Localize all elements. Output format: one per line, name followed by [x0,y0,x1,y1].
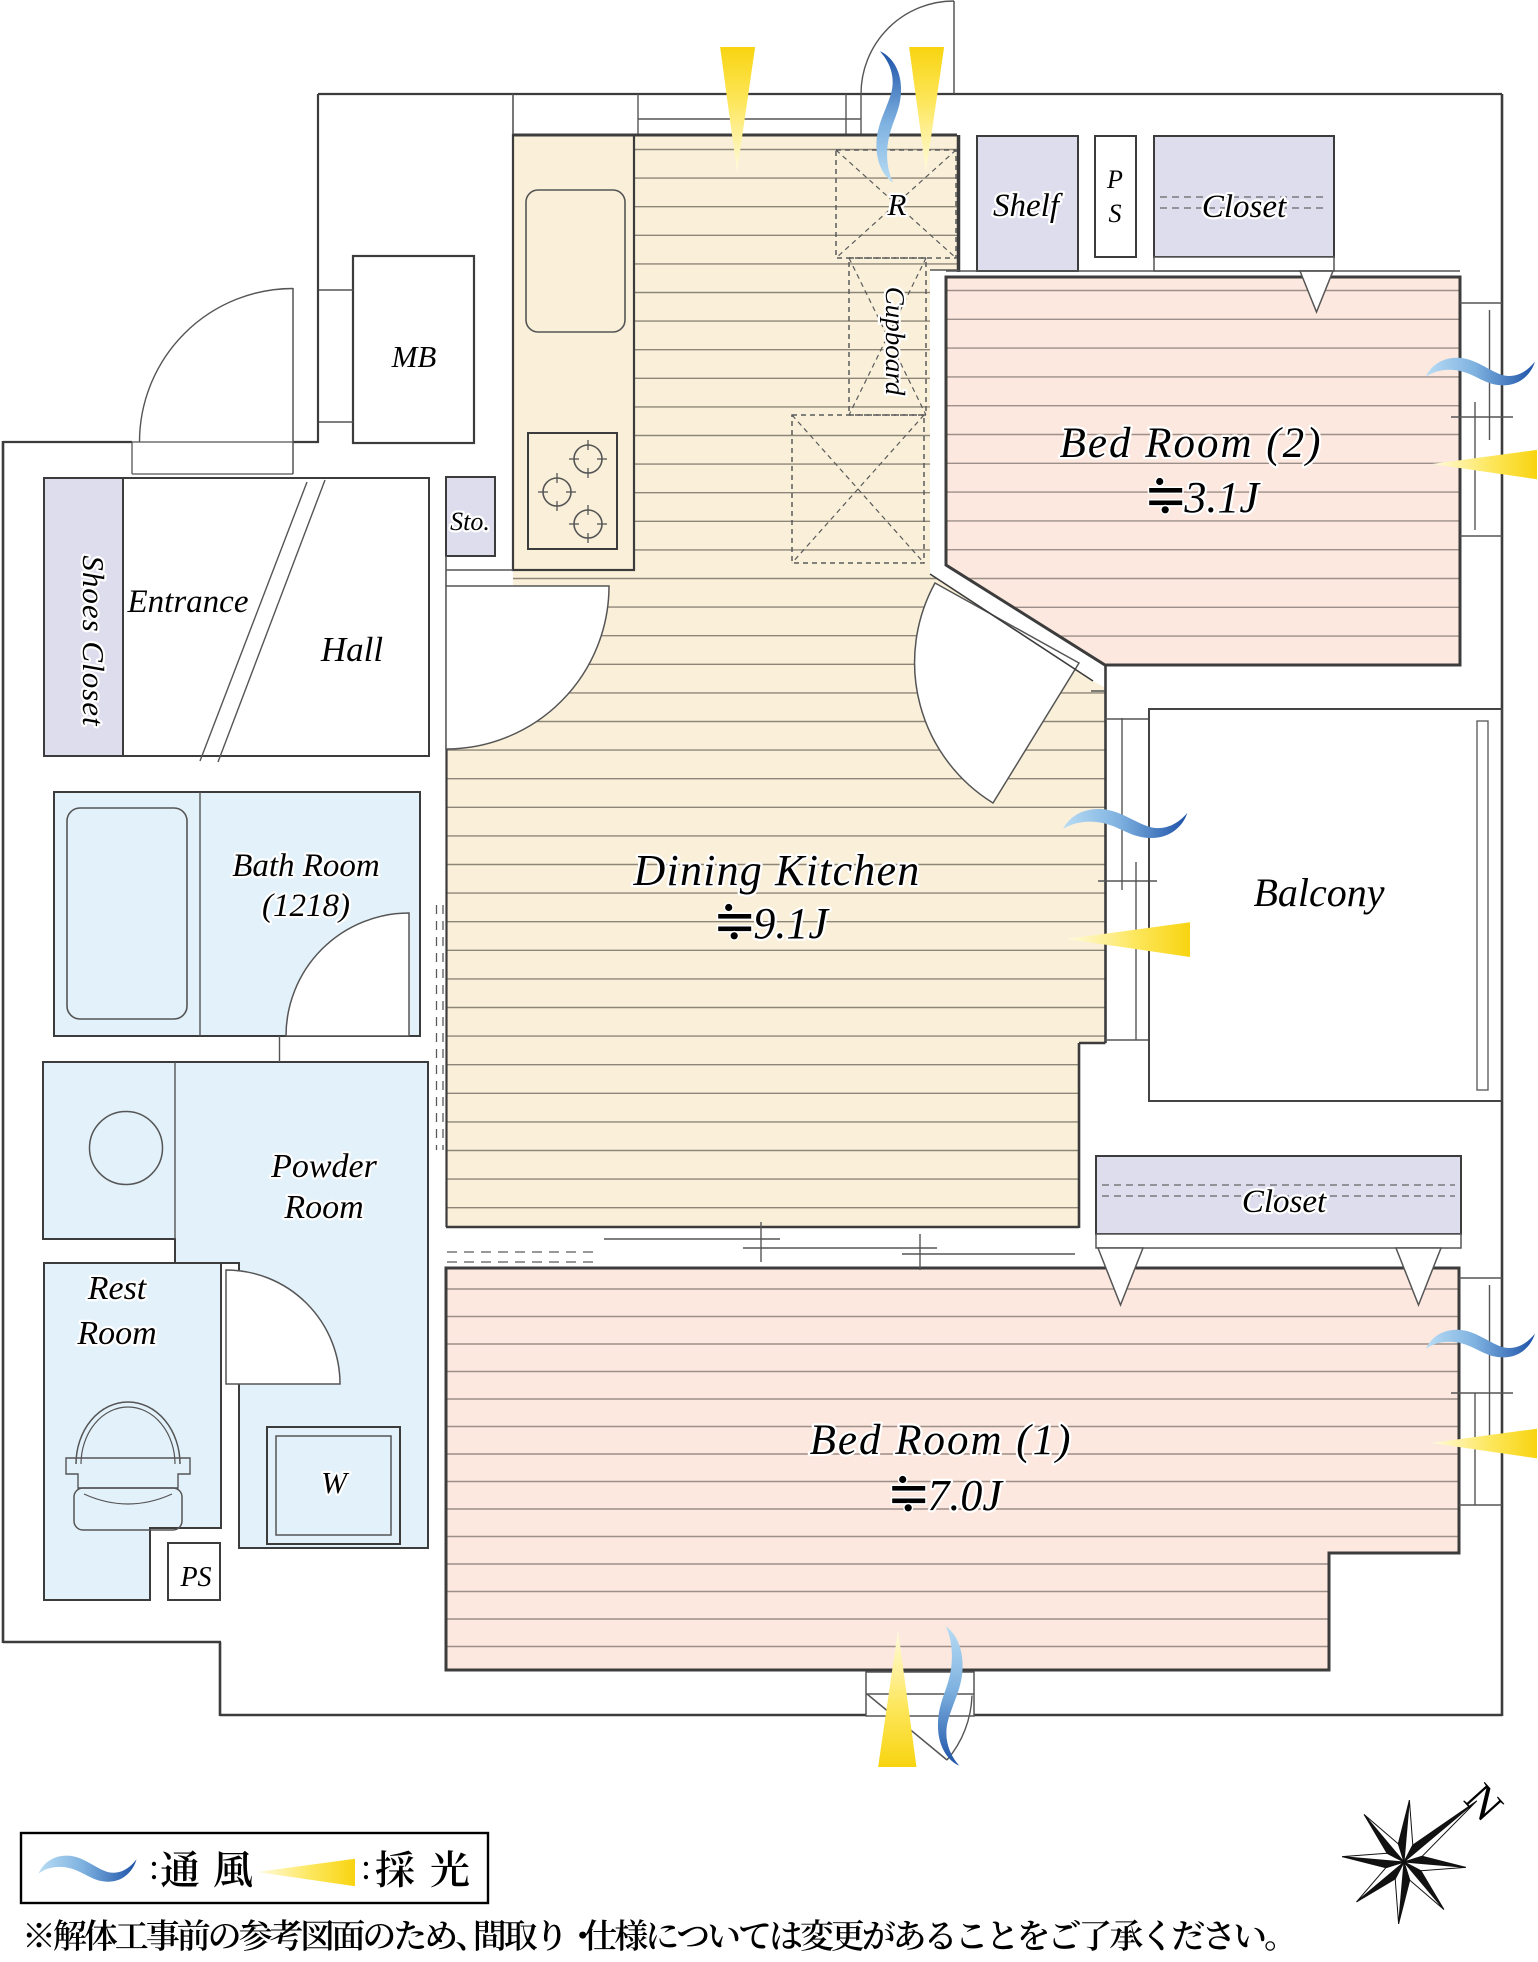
svg-text:Closet: Closet [1202,189,1287,225]
svg-text:MB: MB [391,339,437,374]
svg-text:W: W [321,1465,350,1500]
svg-text:7.0J: 7.0J [927,1471,1004,1520]
svg-text::: : [361,1847,371,1887]
svg-text:Hall: Hall [320,630,383,669]
svg-text:Cupboard: Cupboard [880,287,910,396]
svg-text:Powder: Powder [270,1148,378,1185]
svg-text:Bed Room (1): Bed Room (1) [810,1417,1073,1464]
svg-text:Sto.: Sto. [450,507,490,536]
svg-text:PS: PS [179,1562,211,1593]
svg-text:P: P [1106,165,1123,194]
svg-text:Bed Room (2): Bed Room (2) [1060,420,1323,467]
svg-text:Room: Room [283,1189,363,1226]
svg-text:Shelf: Shelf [993,188,1063,224]
svg-text:9.1J: 9.1J [753,899,830,948]
svg-text:Bath Room: Bath Room [232,848,380,884]
svg-text::: : [149,1847,159,1887]
svg-text:Balcony: Balcony [1253,870,1384,915]
svg-text:Room: Room [76,1315,156,1352]
svg-text:Closet: Closet [1242,1184,1327,1220]
svg-text:Entrance: Entrance [127,584,249,620]
svg-text:Rest: Rest [87,1270,148,1307]
svg-text:(1218): (1218) [262,888,350,924]
svg-text:Dining Kitchen: Dining Kitchen [633,846,921,895]
svg-text:R: R [887,187,907,222]
svg-text:S: S [1109,199,1122,228]
svg-text:Shoes Closet: Shoes Closet [76,555,111,727]
svg-text:3.1J: 3.1J [1183,473,1261,522]
